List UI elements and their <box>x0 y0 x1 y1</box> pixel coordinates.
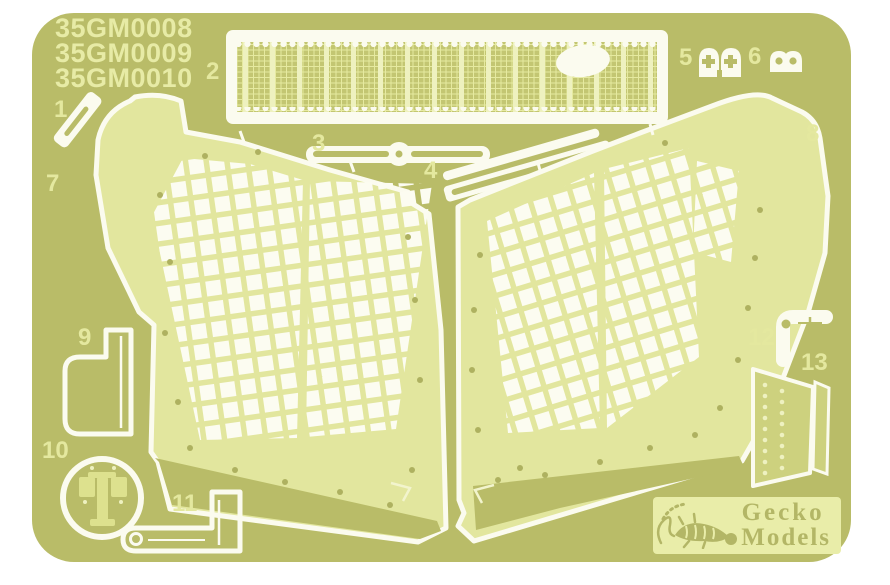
photo-etch-sheet-photo: 35GM0008 35GM0009 35GM0010 1 2 3 4 5 6 7… <box>0 0 890 585</box>
part-6-brackets <box>770 51 802 72</box>
product-codes: 35GM0008 35GM0009 35GM0010 <box>55 16 193 91</box>
part-label-6: 6 <box>748 45 761 69</box>
part-label-13: 13 <box>801 351 828 375</box>
gecko-models-logo-plate: Gecko Models <box>653 497 841 554</box>
part-label-1: 1 <box>54 98 67 122</box>
part-label-10: 10 <box>42 439 69 463</box>
gecko-lizard-icon <box>653 497 741 549</box>
part-label-9: 9 <box>78 326 91 350</box>
part-label-12: 12 <box>748 326 775 350</box>
brand-name-line2: Models <box>741 525 831 550</box>
gecko-models-wordmark: Gecko Models <box>741 500 831 550</box>
part-label-8: 8 <box>806 122 819 146</box>
part-label-11: 11 <box>172 492 197 516</box>
part-label-7: 7 <box>46 172 59 196</box>
part-label-3: 3 <box>312 132 325 156</box>
part-label-2: 2 <box>206 60 219 84</box>
brand-name-line1: Gecko <box>741 500 825 525</box>
part-2-mesh-strip <box>226 30 668 124</box>
part-13-riveted-plate <box>753 369 829 486</box>
part-label-5: 5 <box>679 46 692 70</box>
part-label-4: 4 <box>424 159 437 183</box>
product-code-line: 35GM0010 <box>55 66 193 91</box>
